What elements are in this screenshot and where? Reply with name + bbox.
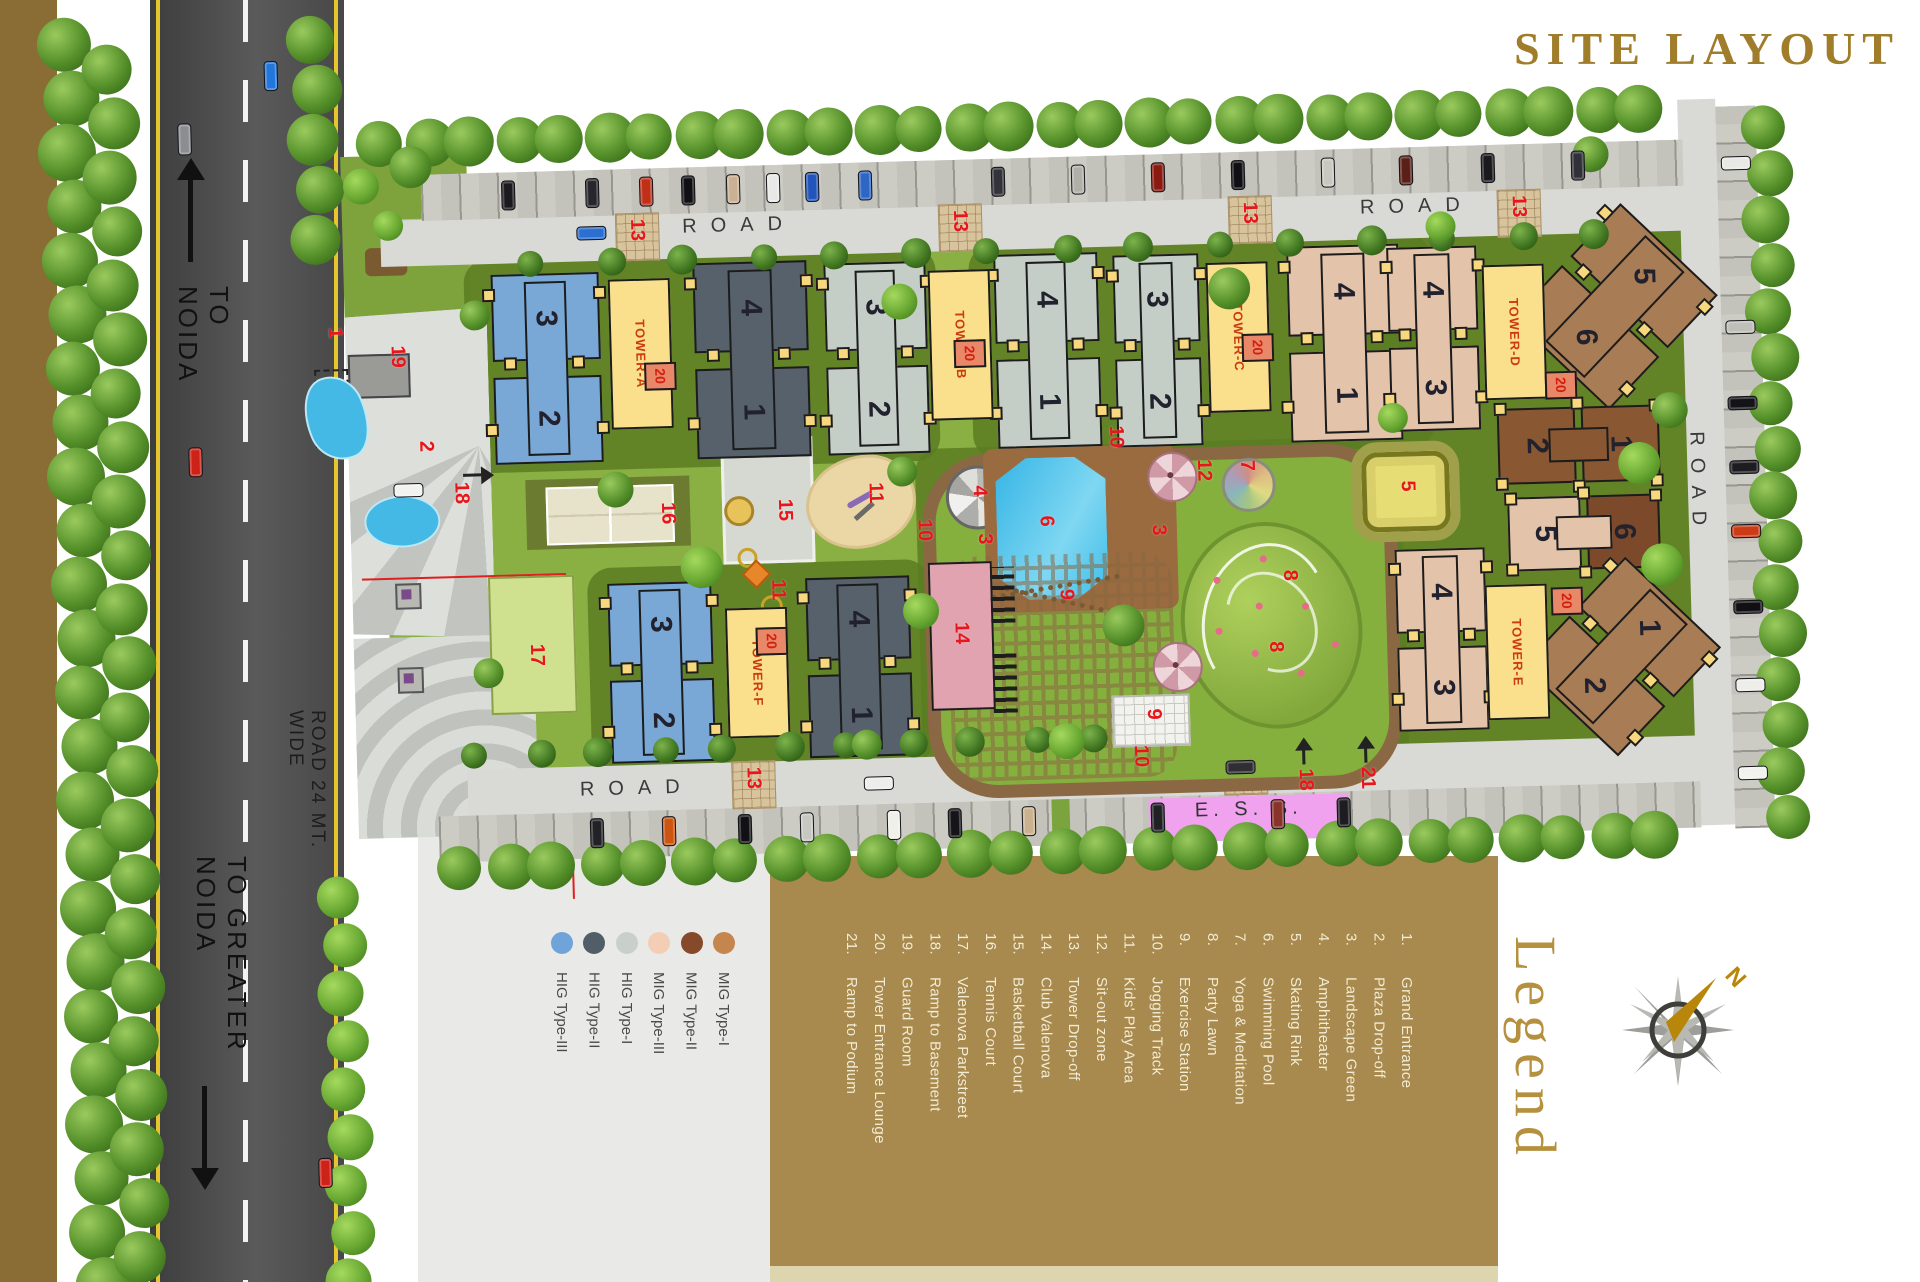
car — [1721, 156, 1751, 171]
entrance-lounge-badge: 20 — [954, 339, 987, 368]
balcony — [1388, 563, 1401, 576]
legend-item-number: 19. — [899, 933, 916, 977]
balcony — [686, 660, 699, 673]
legend-item-number: 5. — [1287, 933, 1304, 977]
marker-15: 15 — [775, 499, 796, 522]
unit-type-number: 2 — [533, 410, 563, 428]
legend-item: 4.Amphitheater — [1315, 933, 1332, 1163]
entrance-lounge-badge: 20 — [1545, 371, 1578, 400]
car — [639, 176, 654, 206]
tree — [1264, 822, 1309, 867]
car — [188, 447, 203, 477]
balcony — [684, 277, 697, 290]
legend-item-number: 1. — [1398, 933, 1415, 977]
legend-item-label: Skating Rink — [1287, 977, 1304, 1066]
balcony — [1479, 560, 1492, 573]
unit-type-number: 3 — [1420, 379, 1450, 397]
car — [800, 812, 815, 842]
legend-item: 7.Yoga & Meditation — [1232, 933, 1249, 1163]
tree — [90, 368, 141, 419]
legend-item-number: 18. — [926, 933, 943, 977]
tree — [1253, 93, 1304, 144]
car — [662, 816, 677, 846]
balcony — [796, 591, 809, 604]
tree — [983, 101, 1034, 152]
tree — [443, 116, 494, 167]
road-label: ROAD — [682, 212, 796, 238]
marker-10: 10 — [1106, 425, 1127, 448]
car — [681, 175, 696, 205]
legend-item-number: 17. — [954, 933, 971, 977]
tree — [1748, 471, 1797, 520]
balcony — [1109, 406, 1122, 419]
car — [1480, 153, 1495, 183]
tree — [82, 150, 137, 205]
car — [1731, 524, 1761, 539]
balcony — [1106, 269, 1119, 282]
tree — [91, 206, 142, 257]
unit-type-number: 4 — [1031, 290, 1061, 308]
balcony — [1095, 404, 1108, 417]
legend-item: 3.Landscape Green — [1343, 933, 1360, 1163]
legend-heading: Legend — [1502, 936, 1569, 1156]
balcony — [1454, 326, 1467, 339]
car — [393, 483, 423, 498]
tree — [86, 259, 139, 312]
tree — [119, 1177, 170, 1228]
legend-item: 9.Exercise Station — [1176, 933, 1193, 1163]
tree — [113, 1230, 166, 1282]
balcony — [1178, 338, 1191, 351]
legend-item-number: 14. — [1037, 933, 1054, 977]
car — [1399, 155, 1414, 185]
car — [948, 808, 963, 838]
tree — [436, 845, 481, 890]
legend-item-number: 4. — [1315, 933, 1332, 977]
residential-building: 41 — [985, 250, 1110, 451]
marker-2: 2 — [416, 441, 436, 453]
building-wing — [1138, 262, 1177, 439]
lawn-flower — [1331, 640, 1339, 648]
car — [805, 172, 820, 202]
unit-type-number: 5 — [1529, 525, 1559, 543]
car — [1225, 760, 1255, 775]
tree — [895, 832, 942, 879]
legend-item: 17.Valenova Parkstreet — [954, 933, 971, 1163]
balcony — [572, 356, 585, 369]
tree — [100, 798, 155, 853]
car — [991, 167, 1006, 197]
unit-type-number: 4 — [735, 299, 765, 317]
balcony — [1577, 486, 1590, 499]
balcony — [1398, 328, 1411, 341]
unit-type-swatch — [551, 932, 573, 954]
arrow-head — [191, 1168, 219, 1190]
legend-item: 1.Grand Entrance — [1398, 933, 1415, 1163]
page-title: SITE LAYOUT — [1400, 22, 1900, 75]
balcony — [593, 285, 606, 298]
unit-type-number: 1 — [1634, 619, 1664, 637]
car — [858, 170, 873, 200]
legend-item-label: Landscape Green — [1343, 977, 1360, 1102]
tree — [1447, 816, 1494, 863]
marker-19: 19 — [387, 345, 408, 368]
unit-type-label: MIG Type-III — [650, 972, 667, 1122]
tree — [290, 214, 341, 265]
tree — [526, 841, 575, 890]
tree — [1435, 90, 1482, 137]
tree — [988, 830, 1033, 875]
balcony — [837, 347, 850, 360]
unit-type-swatch — [616, 932, 638, 954]
club-pergola — [992, 652, 1018, 713]
marker-8: 8 — [1266, 641, 1286, 653]
tree — [108, 1016, 159, 1067]
marker-7: 7 — [1237, 460, 1257, 472]
legend-item-label: Party Lawn — [1204, 977, 1221, 1056]
tree — [1344, 92, 1393, 141]
car — [1735, 678, 1765, 693]
residential-building: 32 — [1105, 251, 1210, 450]
marker-17: 17 — [527, 644, 548, 667]
tree — [96, 421, 149, 474]
car — [1725, 320, 1755, 335]
unit-type-number: 2 — [648, 711, 678, 729]
exercise-station — [1111, 694, 1190, 748]
compass-north-label: N — [1720, 962, 1752, 993]
tree — [712, 838, 757, 883]
balcony — [800, 720, 813, 733]
site-layout-image: TO NOIDA TO GREATER NOIDA ROAD 24 MT. WI… — [0, 0, 1920, 1282]
tree — [1165, 98, 1212, 145]
ess-label: E. S. S. — [1195, 797, 1303, 823]
marker-4: 4 — [970, 485, 990, 497]
legend-item-label: Yoga & Meditation — [1232, 977, 1249, 1105]
balcony — [1277, 261, 1290, 274]
balcony — [482, 288, 495, 301]
car — [1071, 164, 1086, 194]
tree — [99, 692, 150, 743]
legend-item-number: 9. — [1176, 933, 1193, 977]
legend-item-number: 11. — [1121, 933, 1138, 977]
balcony — [778, 347, 791, 360]
legend-item-number: 8. — [1204, 933, 1221, 977]
tree — [325, 1258, 372, 1282]
balcony — [800, 274, 813, 287]
tree — [1762, 701, 1809, 748]
marker-3: 3 — [1149, 524, 1169, 536]
unit-type-number: 2 — [1579, 677, 1609, 695]
building-wing — [1320, 253, 1369, 434]
tree — [295, 165, 344, 214]
balcony — [1506, 564, 1519, 577]
legend-item-number: 16. — [982, 933, 999, 977]
legend-item-label: Grand Entrance — [1398, 977, 1415, 1089]
marker-13: 13 — [627, 219, 648, 242]
plaza-kiosk-core — [401, 589, 411, 599]
tree — [331, 1211, 376, 1256]
legend-item-label: Jogging Track — [1148, 977, 1165, 1076]
building-wing — [1422, 555, 1462, 723]
plaza-kiosk-core — [404, 673, 414, 683]
unit-type-number: 3 — [531, 309, 561, 327]
marker-12: 12 — [1194, 459, 1215, 482]
road-label: ROAD — [1360, 193, 1474, 219]
balcony — [709, 722, 722, 735]
badge-20-label: 20 — [764, 633, 780, 649]
balcony — [620, 662, 633, 675]
unit-type-number: 4 — [843, 610, 873, 628]
car — [726, 174, 741, 204]
building-wing — [1025, 261, 1071, 440]
car — [1729, 460, 1759, 475]
entrance-lounge-badge: 20 — [755, 627, 788, 656]
tree — [1750, 243, 1795, 288]
tree — [92, 312, 147, 367]
legend-item-number: 7. — [1232, 933, 1249, 977]
balcony — [816, 277, 829, 290]
residential-building: 43 — [1387, 545, 1496, 734]
legend-item: 13.Tower Drop-off — [1065, 933, 1082, 1163]
balcony — [804, 414, 817, 427]
residential-building: 32 — [815, 259, 938, 458]
car — [1321, 157, 1336, 187]
tree — [804, 107, 853, 156]
legend-item-label: Tennis Court — [982, 977, 999, 1066]
legend-item: 5.Skating Rink — [1287, 933, 1304, 1163]
legend-item-label: Guard Room — [899, 977, 916, 1067]
legend-item-label: Swimming Pool — [1259, 977, 1276, 1086]
marker-3: 3 — [975, 533, 995, 545]
balcony — [1091, 266, 1104, 279]
legend-item: 12.Sit-out zone — [1093, 933, 1110, 1163]
balcony — [486, 424, 499, 437]
tree — [1523, 86, 1574, 137]
building-wing — [523, 281, 571, 457]
tree — [619, 839, 666, 886]
tree — [1132, 826, 1177, 871]
marker-13: 13 — [1509, 195, 1530, 218]
unit-type-number: 1 — [1331, 386, 1361, 404]
balcony — [1649, 488, 1662, 501]
tree — [110, 853, 161, 904]
direction-arrow — [1364, 747, 1367, 763]
unit-type-label: HIG Type-III — [553, 972, 570, 1122]
tree — [101, 530, 152, 581]
marker-14: 14 — [951, 622, 972, 645]
car — [766, 173, 781, 203]
badge-20-label: 20 — [652, 368, 668, 384]
tree — [1766, 794, 1811, 839]
badge-20-label: 20 — [1559, 593, 1575, 609]
marker-18: 18 — [1296, 768, 1317, 791]
tree — [625, 113, 672, 160]
car — [501, 180, 516, 210]
legend-item: 14.Club Valenova — [1037, 933, 1054, 1163]
balcony — [907, 717, 920, 730]
tree — [115, 1068, 168, 1121]
legend-item-label: Tower Drop-off — [1065, 977, 1082, 1081]
unit-type-label: MIG Type-II — [683, 972, 700, 1122]
unit-type-number: 2 — [1144, 393, 1174, 411]
legend-item-label: Club Valenova — [1037, 977, 1054, 1079]
tower-core: TOWER-D — [1482, 264, 1548, 401]
balcony — [597, 421, 610, 434]
marker-8: 8 — [1280, 569, 1300, 581]
balcony — [1406, 629, 1419, 642]
tree — [91, 474, 146, 529]
balcony — [599, 596, 612, 609]
marker-16: 16 — [658, 502, 679, 525]
balcony — [1493, 402, 1506, 415]
tree — [87, 97, 140, 150]
legend-item: 11.Kids' Play Area — [1121, 933, 1138, 1163]
marker-10: 10 — [914, 519, 935, 542]
legend-item-number: 15. — [1010, 933, 1027, 977]
highway-arrow — [188, 178, 193, 262]
unit-type-number: 4 — [1328, 282, 1358, 300]
balcony — [707, 349, 720, 362]
tower-name-label: TOWER-E — [1509, 618, 1526, 687]
entrance-lounge-badge: 20 — [644, 362, 677, 391]
tree — [316, 876, 359, 919]
marker-13: 13 — [950, 210, 971, 233]
car — [738, 814, 753, 844]
legend-item: 16.Tennis Court — [982, 933, 999, 1163]
tree — [580, 841, 625, 886]
tree — [1740, 105, 1785, 150]
car — [1270, 799, 1285, 829]
tree — [292, 64, 343, 115]
legend-item-number: 3. — [1343, 933, 1360, 977]
unit-type-label: HIG Type-I — [618, 972, 635, 1122]
car — [585, 178, 600, 208]
arrow-head — [1294, 737, 1312, 750]
unit-type-number: 2 — [1521, 437, 1551, 455]
balcony — [1463, 627, 1476, 640]
car — [263, 61, 278, 91]
direction-arrow — [1302, 748, 1305, 764]
tree — [109, 1121, 164, 1176]
unit-type-number: 6 — [1608, 523, 1638, 541]
legend-item-label: Sit-out zone — [1093, 977, 1110, 1062]
legend-item: 18.Ramp to Basement — [926, 933, 943, 1163]
unit-type-number: 4 — [1417, 281, 1447, 299]
balcony — [818, 657, 831, 670]
tower-core: TOWER-A — [608, 278, 674, 430]
building-wing — [1555, 515, 1613, 550]
marker-10: 10 — [1131, 745, 1152, 768]
marker-9: 9 — [1057, 589, 1077, 601]
legend-item: 20.Tower Entrance Lounge — [871, 933, 888, 1163]
umbrella-pole — [1173, 662, 1179, 668]
legend-item: 21.Ramp to Podium — [843, 933, 860, 1163]
residential-building: 41 — [683, 258, 821, 462]
legend-item: 8.Party Lawn — [1204, 933, 1221, 1163]
legend-item: 19.Guard Room — [899, 933, 916, 1163]
balcony — [820, 414, 833, 427]
tree — [1747, 150, 1794, 197]
tree — [1741, 195, 1790, 244]
legend-item-number: 12. — [1093, 933, 1110, 977]
legend-item-label: Ramp to Podium — [843, 977, 860, 1094]
unit-type-number: 4 — [1425, 582, 1455, 600]
road-label: ROAD — [580, 776, 694, 802]
balcony — [504, 358, 517, 371]
legend-item-number: 10. — [1148, 933, 1165, 977]
tree — [95, 583, 148, 636]
tree — [106, 744, 159, 797]
tree — [895, 105, 942, 152]
tree — [713, 108, 764, 159]
car — [864, 776, 894, 791]
marker-18: 18 — [451, 482, 472, 505]
tree — [327, 1114, 374, 1161]
tree — [317, 970, 364, 1017]
legend-item: 2.Plaza Drop-off — [1370, 933, 1387, 1163]
unit-type-label: HIG Type-II — [585, 972, 602, 1122]
legend-item-number: 21. — [843, 933, 860, 977]
legend-item: 6.Swimming Pool — [1259, 933, 1276, 1163]
building-wing — [639, 589, 685, 756]
legend-item-number: 6. — [1259, 933, 1276, 977]
car — [318, 1158, 333, 1188]
unit-type-number: 1 — [738, 403, 768, 421]
highway-arrow — [202, 1086, 207, 1170]
tree — [101, 635, 156, 690]
unit-type-number: 3 — [1428, 679, 1458, 697]
tree — [1540, 815, 1585, 860]
tree — [1758, 608, 1807, 657]
unit-type-label: MIG Type-I — [715, 972, 732, 1122]
road-label: ROAD — [1684, 431, 1712, 602]
tree — [326, 1020, 369, 1063]
balcony — [1300, 332, 1313, 345]
balcony — [1071, 338, 1084, 351]
car — [576, 226, 606, 241]
car — [1231, 160, 1246, 190]
tree — [323, 923, 368, 968]
balcony — [1124, 339, 1137, 352]
legend-item: 15.Basketball Court — [1010, 933, 1027, 1163]
tree — [111, 959, 166, 1014]
balcony — [1392, 693, 1405, 706]
legend-item-number: 20. — [871, 933, 888, 977]
tree — [1354, 818, 1403, 867]
compass-rose: N — [1598, 950, 1758, 1110]
arrow-head — [1356, 735, 1374, 748]
legend-item-label: Ramp to Basement — [926, 977, 943, 1112]
car — [1336, 797, 1351, 827]
tree — [1751, 332, 1800, 381]
tree — [1074, 99, 1123, 148]
tree — [321, 1067, 366, 1112]
car — [887, 810, 902, 840]
residential-building: 32 — [481, 270, 612, 467]
balcony — [602, 725, 615, 738]
club-pergola — [990, 566, 1016, 623]
car — [1727, 396, 1757, 411]
unit-type-number: 1 — [846, 706, 876, 724]
unit-type-number: 3 — [645, 616, 675, 634]
car — [1570, 150, 1585, 180]
car — [1738, 766, 1768, 781]
car — [1151, 162, 1166, 192]
balcony — [706, 593, 719, 606]
entrance-lounge-badge: 20 — [1241, 333, 1274, 362]
marker-6: 6 — [1036, 515, 1056, 527]
unit-type-number: 3 — [1141, 291, 1171, 309]
